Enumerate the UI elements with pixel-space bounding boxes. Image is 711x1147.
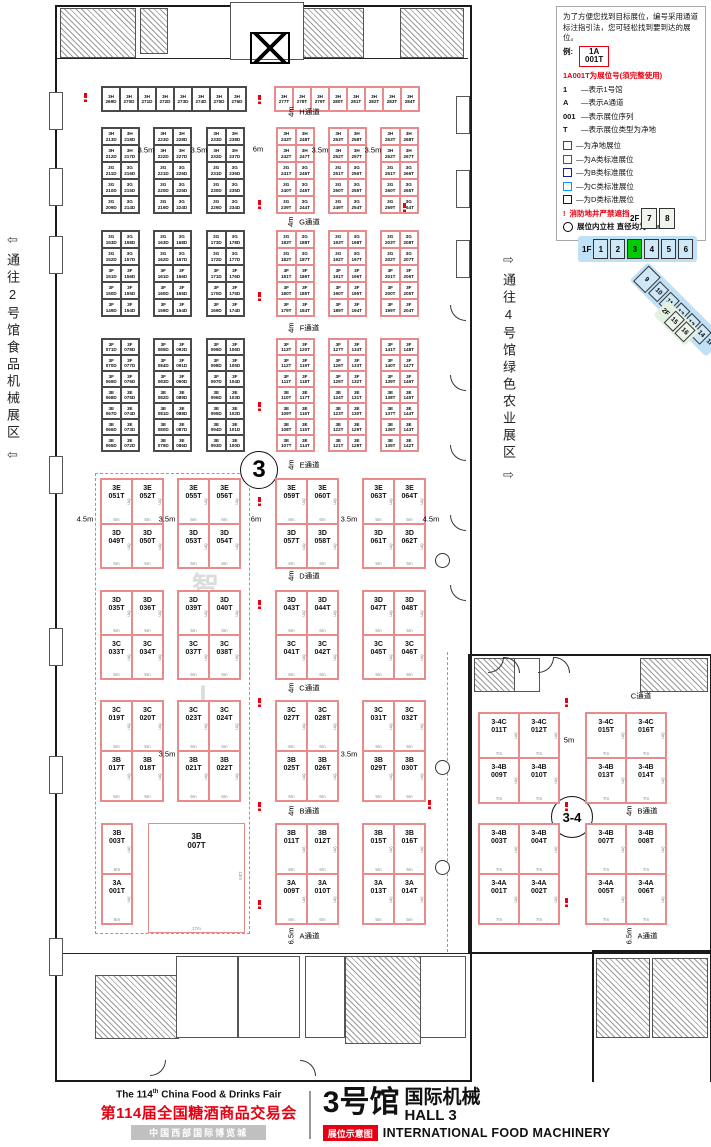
booth-cell: 3F150D [102,282,121,299]
booth-cell: 3D040T6m8m [209,591,240,635]
venue-name: 中国西部国际博览城 [131,1125,266,1140]
booth-cell: 3F125T [329,371,348,387]
dimension-label: 8m [126,543,131,549]
dimension-label: 6m [179,561,208,566]
dimension-label: 5m [395,794,424,799]
dimension-label: 5m [103,917,131,922]
dimension-label: 9m [332,896,337,902]
booth-cell: 3F098D [207,355,226,371]
booth-cell: 3F084D [154,355,173,371]
booth-cell: 3F120T [296,339,315,355]
dimension-label: 7m [520,917,558,922]
dimension-label: 8m [332,723,337,729]
booth-cell: 3B007T17m13m [148,823,245,933]
booth-cell: 3G210D [102,179,121,196]
dimension-label: 9m [513,896,518,902]
booth-cell: 3D053T6m8m [178,524,209,568]
booth-cell: 3C042T6m8m [307,635,338,679]
booth-cell: 3E060T6m8m [307,479,338,524]
dimension-label: 8m [234,610,239,616]
booth-cell: 3F155D [121,282,140,299]
booth-group: 3D047T5m8m3D048T5m8m3C045T5m8m3C046T5m8m [362,590,426,680]
dimension-label: 9m [513,778,518,784]
aisle-width-label: 4m [286,571,295,581]
dimension-label: 8m [332,773,337,779]
booth-cell: 3G236D [226,162,245,179]
booth-cell: 3G211D [102,162,121,179]
aisle-label: 6.5mA通道 [624,928,657,945]
corridor-left: ⇦ 通往2号馆食品机械展区 ⇦ [3,232,22,463]
dimension-label: 8m [388,723,393,729]
dimension-label: 5m [395,561,424,566]
booth-cell: 3G158D [121,231,140,248]
fire-hydrant-icon [258,802,261,811]
dimension-label: 5m [364,517,393,522]
booth-cell: 3G225D [173,179,192,196]
booth-cell: 3F174D [226,299,245,316]
booth-cell: 3F169D [207,299,226,316]
locator-hall-7: 7 [641,208,657,229]
booth-cell: 3C031T5m8m [363,701,394,751]
booth-cell: 3E095D [207,403,226,419]
dimension-label: 8m [203,654,208,660]
booth-cell: 3F161D [154,265,173,282]
booth-cell: 3G209D [102,196,121,213]
wall-niche [49,938,63,976]
wall-niche [49,456,63,494]
dimension-label: 5m [133,517,162,522]
hall-title-en: HALL 3 [404,1108,480,1125]
stairs-block [640,658,708,692]
aisle-width-label: 4m [286,460,295,470]
booth-cell: 3E100D [226,435,245,451]
booth-cell: 3B015T5m9m [363,824,394,874]
dimension-label: 9m [660,778,665,784]
legend-code-items: 1—表示1号馆A—表示A通道001—表示展位序列T—表示展位类型为净地 [563,84,699,136]
aisle-label: C通道 [631,691,651,702]
booth-cell: 3B030T5m8m [394,751,425,801]
dimension-label: 9m [301,896,306,902]
aisle-label: 4mE通道 [286,460,319,471]
booth-cell: 3G239T [277,196,296,213]
facility-room [305,956,345,1038]
dimension-label: 9m [388,896,393,902]
booth-cell: 3E068D [102,387,121,403]
dimension-label: 8m [301,543,306,549]
dimension-label: 8m [301,654,306,660]
dimension-label: 6m [308,517,337,522]
booth-cell: 3H257T [348,145,367,162]
dimension-label: 5m [102,561,131,566]
dimension-label: 6m [179,744,208,749]
booth-cell: 3H263T [381,128,400,145]
stairs-block [596,958,650,1038]
booth-group: 3E059T6m8m3E060T6m8m3D057T6m8m3D058T6m8m [275,478,339,569]
wall-niche [49,92,63,130]
booth-cell: 3G229D [207,196,226,213]
booth-cell: 3-4A001T7m9m [479,874,519,924]
dimension-label: 7m [627,796,665,801]
dimension-label: 5m [102,628,131,633]
legend-code-item: T—表示展位类型为净地 [563,124,699,135]
booth-cell: 3G215D [121,179,140,196]
booth-group: 3F127T3F134T3F126T3F133T3F125T3F132T3E12… [328,338,367,452]
booth-cell: 3G251T [329,162,348,179]
booth-cell: 3E135T [381,435,400,451]
dimension-label: 8m [419,723,424,729]
booth-cell: 3F189T [329,299,348,316]
dimension-label: 3.5m [159,750,176,759]
corridor-left-text: 通往2号馆食品机械展区 [3,253,22,442]
booth-cell: 3F195T [348,282,367,299]
booth-cell: 3-4A002T7m9m [519,874,559,924]
fair-title-en: The 114th China Food & Drinks Fair [116,1089,281,1100]
dimension-label: 8m [234,654,239,660]
aisle-name: C通道 [631,691,651,702]
booth-cell: 3F076D [121,371,140,387]
booth-cell: 3G261T [381,162,400,179]
dimension-label: 7m [587,751,625,756]
booth-group: 3H233D3H238D3H232D3H237D3G231D3G236D3G23… [206,127,245,214]
booth-cell: 3D054T6m8m [209,524,240,568]
dimension-label: 5m [103,867,131,872]
legend-intro: 为了方便您找到目标展位，编号采用通道标注指引法，您可轻松找到要到达的展位。 [563,12,699,44]
booth-cell: 3-4A006T7m9m [626,874,666,924]
booth-cell: 3E102D [226,403,245,419]
booth-cell: 3F159D [154,299,173,316]
booth-cell: 3B029T5m8m [363,751,394,801]
dimension-label: 7m [480,796,518,801]
booth-cell: 3E055T6m8m [178,479,209,524]
legend-fire-note: 消防地井严禁遮挡 [570,208,630,219]
booth-cell: 3H252T [329,145,348,162]
dimension-label: 8m [126,610,131,616]
legend-swatch-item: —为C类标准展位 [563,181,699,192]
booth-cell: 3G240T [277,179,296,196]
booth-group: 3E055T6m8m3E056T6m8m3D053T6m8m3D054T6m8m [177,478,241,569]
booth-cell: 3G254T [348,196,367,213]
aisle-label: 4mC通道 [286,683,319,694]
pillar-icon [563,222,573,232]
booth-cell: 3G178D [226,231,245,248]
fire-hydrant-icon [258,698,261,707]
title-block: The 114th China Food & Drinks Fair 第114届… [0,1082,711,1147]
booth-cell: 3F181T [277,265,296,282]
dimension-label: 6m [277,517,306,522]
booth-cell: 3F164D [173,299,192,316]
booth-cell: 3C032T5m8m [394,701,425,751]
booth-cell: 3D048T5m8m [394,591,425,635]
dimension-label: 8m [203,543,208,549]
arrow-left-icon: ⇦ [7,232,18,248]
arrow-left-icon: ⇦ [7,447,18,463]
booth-cell: 3C038T6m8m [209,635,240,679]
booth-cell: 3G188T [296,231,315,248]
dimension-label: 6m [277,917,306,922]
booth-cell: 3G250T [329,179,348,196]
aisle-width-label: 4m [286,217,295,227]
booth-cell: 3E089D [173,387,192,403]
booth-cell: 3-4B013T7m9m [586,758,626,803]
dimension-label: 9m [553,733,558,739]
booth-cell: 3E128T [348,435,367,451]
booth-cell: 3B021T6m8m [178,751,209,801]
booth-cell: 3F206T [400,265,419,282]
wall-niche [456,170,470,208]
dimension-label: 8m [126,723,131,729]
locator-hall-4: 4 [644,239,659,259]
legend-swatch-item: —为D类标准展位 [563,194,699,205]
booth-cell: 3F071D [102,339,121,355]
booth-cell: 3G197T [348,248,367,265]
dimension-label: 8m [157,773,162,779]
booth-cell: 3E130T [348,403,367,419]
booth-cell: 3G226D [173,162,192,179]
booth-cell: 3H243T [277,128,296,145]
dimension-label: 8m [388,543,393,549]
booth-cell: 3E107T [277,435,296,451]
booth-cell: 3E144T [400,403,419,419]
booth-cell: 3F190T [329,282,348,299]
dimension-label: 3.5m [312,146,329,155]
booth-type-swatch [563,168,572,177]
booth-cell: 3G168D [173,231,192,248]
title-divider [309,1091,311,1139]
booth-cell: 3H275D [210,87,228,111]
dimension-label: 5m [133,672,162,677]
booth-cell: 3-4B004T7m9m [519,824,559,874]
booth-cell: 3E075D [121,387,140,403]
dimension-label: 8m [388,499,393,505]
aisle-label: 6.5mA通道 [286,928,319,945]
dimension-label: 5m [395,672,424,677]
booth-cell: 3F199T [381,299,400,316]
aisle-width-label: 6.5m [624,928,633,945]
booth-type-swatch [563,141,572,150]
dimension-label: 3.5m [191,146,208,155]
booth-cell: 3F139T [381,371,400,387]
booth-group: 3G163D3G168D3G162D3G167D3F161D3F166D3F16… [153,230,192,317]
booth-group: 3E063T5m8m3E064T5m8m3D061T5m8m3D062T5m8m [362,478,426,569]
booth-cell: 3E065D [102,435,121,451]
booth-cell: 3E143T [400,419,419,435]
booth-cell: 3D049T5m8m [101,524,132,568]
booth-cell: 3G260T [381,179,400,196]
dimension-label: 8m [234,543,239,549]
stairs-block [345,956,421,1044]
booth-cell: 3F149D [102,299,121,316]
dimension-label: 8m [419,610,424,616]
legend-example-booth: 1A001T [579,46,609,68]
booth-cell: 3F160D [154,282,173,299]
dimension-label: 7m [587,796,625,801]
booth-cell: 3G167D [173,248,192,265]
dimension-label: 6m [308,794,337,799]
wall-niche [456,240,470,278]
dimension-label: 8m [234,723,239,729]
dimension-label: 5m [133,561,162,566]
booth-cell: 3G230D [207,179,226,196]
dimension-label: 8m [301,773,306,779]
legend-code-item: 1—表示1号馆 [563,84,699,95]
aisle-label: 4mG通道 [286,217,320,228]
booth-cell: 3D036T5m8m [132,591,163,635]
booth-cell: 3G234D [226,196,245,213]
booth-cell: 3G255T [348,179,367,196]
booth-cell: 3G187T [296,248,315,265]
dimension-label: 7m [520,751,558,756]
booth-cell: 3F069D [102,371,121,387]
booth-cell: 3-4B009T7m9m [479,758,519,803]
fire-hydrant-icon [258,402,261,411]
dimension-label: 7m [627,917,665,922]
dimension-label: 9m [553,846,558,852]
booth-cell: 3H227D [173,145,192,162]
floorplan-page: 智能AI专区 ⇦ 通往2号馆食品机械展区 ⇦ ⇨ 通往4号馆绿色农业展区 ⇨ 3… [0,0,711,1147]
booth-cell: 3-4C011T7m9m [479,713,519,758]
booth-cell: 3F113T [277,339,296,355]
booth-cell: 3H258T [348,128,367,145]
booth-row: 3H269D3H270D3H271D3H272D3H273D3H274D3H27… [101,86,247,112]
dimension-label: 9m [419,896,424,902]
dimension-label: 3.5m [159,515,176,524]
booth-cell: 3E074D [121,403,140,419]
booth-group: 3-4B003T7m9m3-4B004T7m9m3-4A001T7m9m3-4A… [478,823,560,925]
booth-cell: 3F154D [121,299,140,316]
booth-cell: 3D043T6m8m [276,591,307,635]
dimension-label: 7m [587,867,625,872]
legend-code-item: 001—表示展位序列 [563,111,699,122]
booth-cell: 3G219D [154,196,173,213]
booth-cell: 3F105D [226,355,245,371]
booth-cell: 3G177D [226,248,245,265]
dimension-label: 9m [620,896,625,902]
dimension-label: 8m [203,499,208,505]
booth-cell: 3G266T [400,162,419,179]
stairs-block [60,8,136,58]
wall-niche [49,168,63,206]
booth-cell: 3E136T [381,419,400,435]
booth-cell: 3D061T5m8m [363,524,394,568]
booth-cell: 3G192T [329,248,348,265]
booth-group: 3H213D3H218D3H212D3H217D3G211D3G216D3G21… [101,127,140,214]
dimension-label: 5m [102,744,131,749]
legend-swatch-item: —为A类标准展位 [563,154,699,165]
booth-cell: 3F132T [348,371,367,387]
booth-cell: 3G163D [154,231,173,248]
dimension-label: 5m [395,917,424,922]
booth-cell: 3-4C012T7m9m [519,713,559,758]
dimension-label: 6m [179,628,208,633]
dimension-label: 6m [277,672,306,677]
booth-cell: 3C034T5m8m [132,635,163,679]
booth-cell: 3E066D [102,419,121,435]
booth-cell: 3G172D [207,248,226,265]
dimension-label: 6m [210,794,239,799]
elevator-icon [250,32,290,64]
booth-group: 3E051T5m8m3E052T5m8m3D049T5m8m3D050T5m8m [100,478,164,569]
booth-cell: 3H223D [154,128,173,145]
dimension-label: 6m [251,515,261,524]
booth-cell: 3-4B003T7m9m [479,824,519,874]
booth-cell: 3G244T [296,196,315,213]
booth-cell: 3-4C016T7m9m [626,713,666,758]
dimension-label: 9m [513,733,518,739]
dimension-label: 8m [157,654,162,660]
booth-cell: 3A014T5m9m [394,874,425,924]
dimension-label: 9m [553,778,558,784]
dimension-label: 8m [332,654,337,660]
booth-cell: 3C024T6m8m [209,701,240,751]
dimension-label: 5m [395,744,424,749]
booth-cell: 3F118T [296,371,315,387]
booth-group: 3-4C011T7m9m3-4C012T7m9m3-4B009T7m9m3-4B… [478,712,560,804]
booth-cell: 3F165D [173,282,192,299]
dimension-label: 5m [133,794,162,799]
booth-type-swatch [563,195,572,204]
dimension-label: 9m [553,896,558,902]
aisle-width-label: 4m [624,806,633,816]
booth-cell: 3E093D [207,435,226,451]
booth-cell: 3E131T [348,387,367,403]
booth-group: 3F071D3F078D3F070D3F077D3F069D3F076D3E06… [101,338,140,452]
booth-group: 3C023T6m8m3C024T6m8m3B021T6m8m3B022T6m8m [177,700,241,802]
dimension-label: 6m [277,628,306,633]
dimension-label: 9m [660,733,665,739]
booth-cell: 3H273D [174,87,192,111]
booth-cell: 3E081D [154,403,173,419]
fire-hydrant-icon [428,800,431,809]
booth-group: 3G193T3G198T3G192T3G197T3F191T3F196T3F19… [328,230,367,317]
dimension-label: 5m [364,744,393,749]
wall-niche [456,96,470,134]
booth-group: 3B015T5m9m3B016T5m9m3A013T5m9m3A014T5m9m [362,823,426,925]
booth-cell: 3E116T [296,403,315,419]
dimension-label: 9m [388,846,393,852]
fire-hydrant-icon [84,93,87,102]
aisle-width-label: 4m [286,107,295,117]
dimension-label: 9m [419,846,424,852]
locator-hall-8: 8 [659,208,675,229]
dimension-label: 8m [157,543,162,549]
booth-cell: 3A009T6m9m [276,874,307,924]
booth-cell: 3F180T [277,282,296,299]
booth-group: 3G203T3G208T3G202T3G207T3F201T3F206T3F20… [380,230,419,317]
dimension-label: 13m [238,871,243,880]
booth-cell: 3E122T [329,419,348,435]
booth-cell: 3C037T6m8m [178,635,209,679]
aisle-name: E通道 [299,460,319,471]
booth-cell: 3D044T6m8m [307,591,338,635]
booth-cell: 3H232D [207,145,226,162]
booth-cell: 3G249T [329,196,348,213]
booth-cell: 3G220D [154,179,173,196]
locator-hall-3: 3 [627,239,642,259]
dimension-label: 6m [308,744,337,749]
booth-cell: 3G208T [400,231,419,248]
booth-cell: 3B022T6m8m [209,751,240,801]
pillar-icon [435,553,450,568]
locator-hall-6: 6 [678,239,693,259]
dimension-label: 6m [277,744,306,749]
booth-cell: 3G214D [121,196,140,213]
booth-cell: 3-4B014T7m9m [626,758,666,803]
aisle-name: D通道 [299,571,319,582]
stairs-block [652,958,708,1038]
booth-cell: 3E137T [381,403,400,419]
booth-cell: 3-4B007T7m9m [586,824,626,874]
dimension-label: 5m [395,628,424,633]
